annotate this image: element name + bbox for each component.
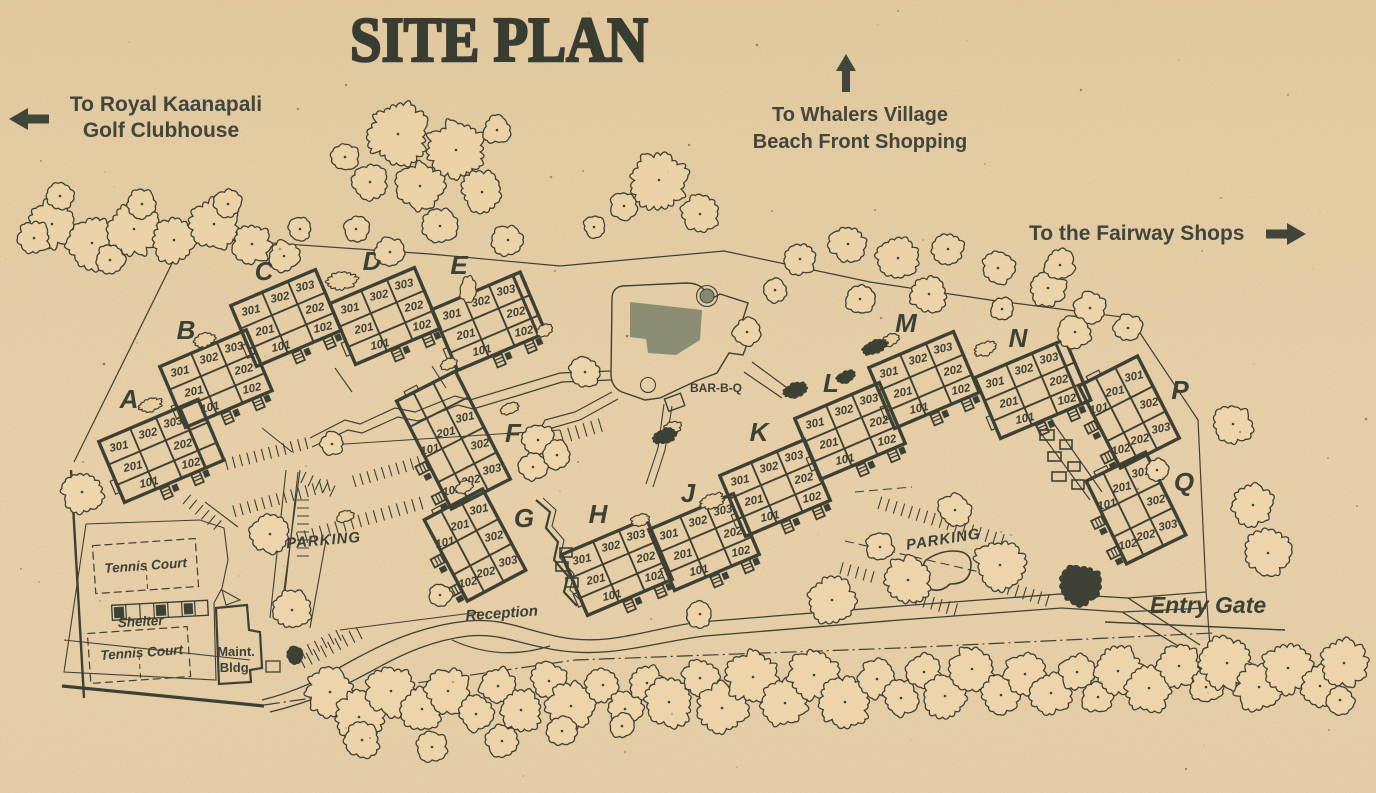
svg-text:F: F [505,418,522,448]
svg-text:To the Fairway Shops: To the Fairway Shops [1029,222,1244,245]
svg-text:N: N [1009,323,1029,353]
svg-text:Bldg.: Bldg. [220,660,253,675]
svg-text:Beach Front Shopping: Beach Front Shopping [753,131,967,153]
svg-text:Q: Q [1174,467,1194,497]
svg-text:K: K [750,417,771,447]
svg-text:M: M [895,308,918,338]
svg-text:To Whalers Village: To Whalers Village [772,104,948,126]
svg-text:B: B [177,315,196,345]
svg-text:A: A [119,384,139,414]
svg-text:G: G [514,503,534,533]
svg-text:P: P [1171,375,1189,405]
svg-text:H: H [589,499,609,529]
svg-text:L: L [823,368,839,398]
svg-text:SITE PLAN: SITE PLAN [350,5,648,75]
svg-text:BAR-B-Q: BAR-B-Q [690,381,742,395]
svg-text:E: E [450,250,468,280]
svg-text:Entry Gate: Entry Gate [1150,592,1267,618]
svg-text:J: J [681,478,696,508]
svg-text:Golf Clubhouse: Golf Clubhouse [83,119,239,142]
svg-text:Shelter: Shelter [117,613,164,630]
svg-text:To Royal Kaanapali: To Royal Kaanapali [70,93,262,116]
